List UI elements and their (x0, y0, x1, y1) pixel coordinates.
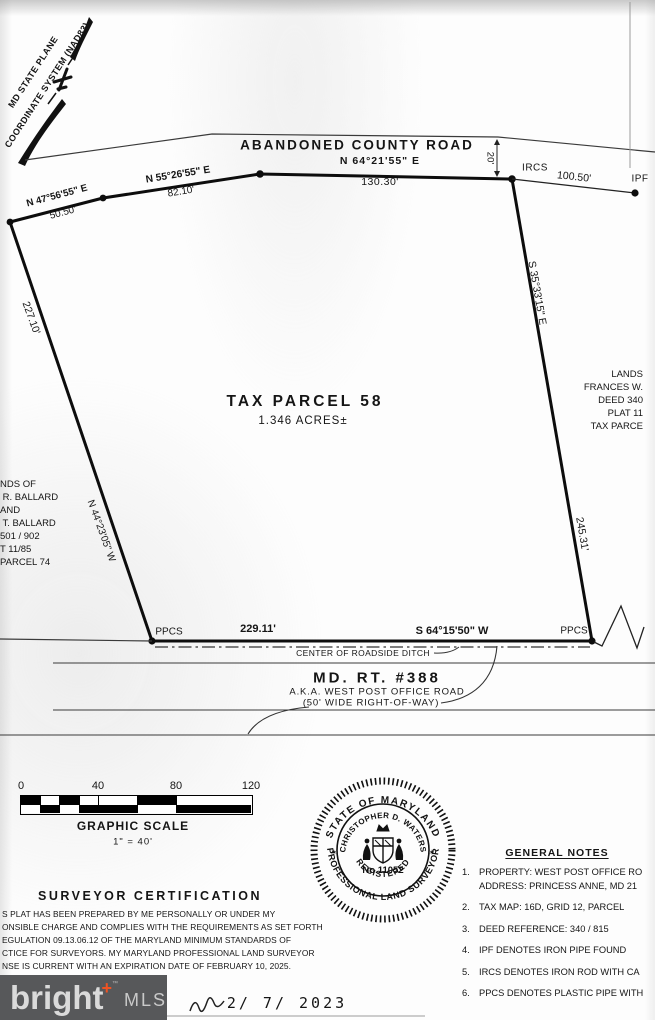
boundary-extension (0, 639, 152, 641)
route-row: (50' WIDE RIGHT-OF-WAY) (303, 698, 439, 709)
note-item: 2. TAX MAP: 16D, GRID 12, PARCEL (462, 901, 655, 915)
scale-tick-80: 80 (170, 780, 182, 792)
neighbor-west-line: AND (0, 504, 58, 517)
surveyor-seal: STATE OF MARYLAND PROFESSIONAL LAND SURV… (303, 767, 463, 927)
brightmls-plus-icon: + (101, 978, 112, 999)
brightmls-logo-text: bright (10, 981, 103, 1014)
ppcs-left-label: PPCS (155, 627, 182, 638)
break-symbol (594, 606, 644, 648)
ipf-label: IPF (631, 174, 648, 185)
brightmls-watermark: bright + ™ MLS (0, 975, 167, 1020)
scale-tick-40: 40 (92, 780, 104, 792)
seal-star-right: ✶ (429, 848, 436, 857)
ditch-leader (434, 647, 459, 653)
road-width-label: 20' (485, 152, 496, 164)
certification-date: 2/ 7/ 2023 (227, 994, 347, 1012)
certification-line: S PLAT HAS BEEN PREPARED BY ME PERSONALL… (2, 908, 323, 921)
note-item: 4. IPF DENOTES IRON PIPE FOUND (462, 944, 655, 958)
scale-tick-0: 0 (18, 780, 24, 792)
neighbor-west-line: R. BALLARD (0, 491, 58, 504)
neighbor-east-line: TAX PARCE (584, 420, 643, 433)
neighbor-west-line: PARCEL 74 (0, 556, 58, 569)
neighbor-east-block: LANDS FRANCES W. DEED 340 PLAT 11 TAX PA… (584, 368, 643, 433)
corner-point (256, 170, 264, 178)
note-line: IRCS DENOTES IRON ROD WITH CA (479, 966, 640, 980)
scale-equation: 1" = 40' (113, 837, 153, 848)
note-number: 3. (462, 923, 479, 937)
ppcs-right-label: PPCS (560, 626, 587, 637)
bearing-south: S 64°15'50" W (416, 625, 489, 637)
row-leader-left (248, 707, 309, 734)
corner-point (7, 219, 14, 226)
parcel-area: 1.346 ACRES± (258, 415, 347, 427)
route-name: MD. RT. #388 (313, 670, 441, 687)
note-number: 6. (462, 987, 479, 1001)
note-item: 1. PROPERTY: WEST POST OFFICE ROADDRESS:… (462, 866, 655, 893)
parcel-title: TAX PARCEL 58 (227, 393, 384, 411)
note-line: IPF DENOTES IRON PIPE FOUND (479, 944, 626, 958)
note-item: 5. IRCS DENOTES IRON ROD WITH CA (462, 966, 655, 980)
corner-point-ppcs (588, 637, 595, 644)
note-item: 3. DEED REFERENCE: 340 / 815 (462, 923, 655, 937)
certification-line: ONSIBLE CHARGE AND COMPLIES WITH THE REQ… (2, 921, 323, 934)
signature-scribble (190, 998, 224, 1012)
neighbor-west-block: NDS OF R. BALLARD AND T. BALLARD 501 / 9… (0, 478, 58, 569)
neighbor-east-line: FRANCES W. (584, 381, 643, 394)
seal-star-left: ✶ (331, 848, 338, 857)
road-name-top: ABANDONED COUNTY ROAD (240, 138, 474, 153)
certification-line: CTICE FOR SURVEYORS. MY MARYLAND PROFESS… (2, 947, 323, 960)
distance-north: 130.30' (361, 176, 399, 188)
distance-south: 229.11' (240, 623, 276, 635)
note-number: 4. (462, 944, 479, 958)
note-line: PPCS DENOTES PLASTIC PIPE WITH (479, 987, 643, 1001)
ditch-label: CENTER OF ROADSIDE DITCH (296, 648, 430, 658)
neighbor-west-line: 501 / 902 (0, 530, 58, 543)
neighbor-east-line: LANDS (584, 368, 643, 381)
bearing-north: N 64°21'55" E (340, 155, 420, 167)
note-number: 2. (462, 901, 479, 915)
brightmls-mls-text: MLS (124, 990, 167, 1011)
note-line: TAX MAP: 16D, GRID 12, PARCEL (479, 901, 624, 915)
note-line: ADDRESS: PRINCESS ANNE, MD 21 (479, 880, 642, 894)
neighbor-west-line: NDS OF (0, 478, 58, 491)
ircs-label: IRCS (522, 163, 548, 174)
ipf-point (631, 189, 638, 196)
corner-point (100, 195, 107, 202)
route-aka: A.K.A. WEST POST OFFICE ROAD (289, 687, 464, 698)
certification-line: EGULATION 09.13.06.12 OF THE MARYLAND MI… (2, 934, 323, 947)
scale-bar (20, 795, 253, 815)
trademark-symbol: ™ (112, 981, 118, 987)
neighbor-west-line: T 11/85 (0, 543, 58, 556)
neighbor-west-line: T. BALLARD (0, 517, 58, 530)
scale-title: GRAPHIC SCALE (77, 819, 189, 833)
note-number: 1. (462, 866, 479, 893)
certification-line: NSE IS CURRENT WITH AN EXPIRATION DATE O… (2, 960, 323, 973)
note-number: 5. (462, 966, 479, 980)
note-item: 6. PPCS DENOTES PLASTIC PIPE WITH (462, 987, 655, 1001)
seal-number: No.11052 (362, 865, 403, 876)
neighbor-east-line: DEED 340 (584, 394, 643, 407)
neighbor-east-line: PLAT 11 (584, 407, 643, 420)
scale-tick-120: 120 (242, 780, 260, 792)
note-line: PROPERTY: WEST POST OFFICE RO (479, 866, 642, 880)
certification-body: S PLAT HAS BEEN PREPARED BY ME PERSONALL… (2, 908, 323, 973)
note-line: DEED REFERENCE: 340 / 815 (479, 923, 609, 937)
certification-title: SURVEYOR CERTIFICATION (38, 889, 262, 903)
notes-title: GENERAL NOTES (505, 847, 608, 859)
seal-crest (363, 825, 403, 863)
general-notes-list: 1. PROPERTY: WEST POST OFFICE ROADDRESS:… (462, 866, 655, 1009)
